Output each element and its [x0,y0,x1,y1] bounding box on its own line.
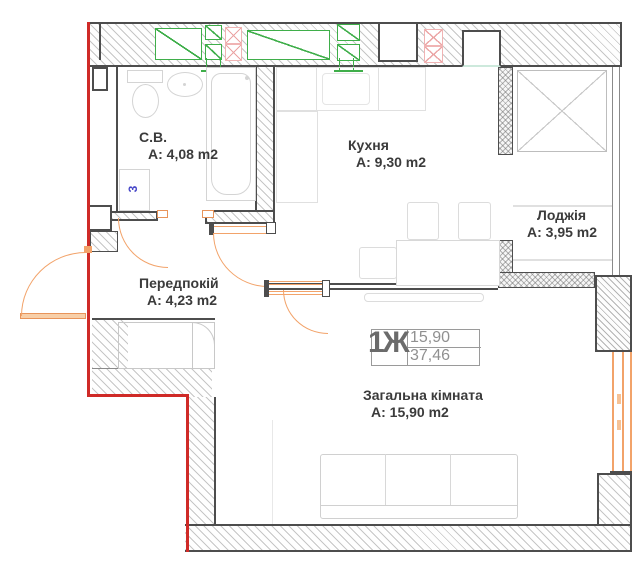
chimney-mark-icon [424,29,443,46]
entrance-door-post [84,246,92,253]
vent-shaft-icon [337,24,360,41]
stamp-total-area: 37,46 [410,347,450,365]
bathtub-inner [211,73,251,195]
wall-bathroom-left-edge [116,67,118,212]
toilet-bowl [132,84,159,118]
sofa-back-line [320,505,518,506]
wall-kitchen-loggia-top [498,67,513,155]
room-label-kitchen: Кухня [348,137,389,153]
chimney-mark-icon [225,44,242,61]
pilaster [88,205,112,231]
sink-drain [183,83,186,86]
chimney-mark-icon [225,27,242,44]
room-label-hallway: Передпокій [139,275,219,291]
bathroom-door-post [202,210,214,218]
stamp-unit-label: 1Ж [368,326,408,360]
entrance-door-arc [21,252,86,316]
kitchen-door-arc [213,233,268,287]
room-label-bathroom: С.В. [139,129,167,145]
tv-console [364,293,484,302]
washer-mark: 3 [126,174,140,204]
boundary-line-left [87,22,90,397]
vent-shaft-icon [247,30,330,60]
wardrobe-niche-edge [128,318,215,320]
pilaster [92,67,108,91]
room-area-kitchen: A: 9,30 m2 [356,154,426,170]
wall-kitchen-loggia-low [498,240,513,274]
boundary-line-step [87,394,189,397]
bathtub-tap [245,76,249,80]
loggia-shaft-box [517,70,607,152]
kitchen-counter-divider [378,67,379,111]
stamp-living-area: 15,90 [410,329,450,347]
living-room-window [612,352,632,473]
wall-bathroom-kitchen [255,67,275,222]
wall-niche-left [378,24,418,62]
loggia-glazing [612,67,620,277]
wall-living-left [188,397,216,524]
loggia-mullion [513,259,612,261]
kitchen-chair [359,247,397,279]
vent-shaft-icon [205,25,222,40]
vent-shaft-icon [155,28,202,60]
wall-loggia-bottom [498,272,595,288]
wall-top-joint [99,22,101,60]
kitchen-counter-left [276,111,318,203]
room-label-living: Загальна кімната [363,387,483,403]
chimney-mark-icon [424,46,443,63]
living-faint-line [272,420,273,524]
boundary-line-lower [186,394,189,552]
sofa-cushion-line [385,454,386,505]
wall-bottom [185,524,632,552]
kitchen-sink [322,73,370,105]
bathroom-door-arc [118,218,168,268]
wall-above-entrance [90,231,118,252]
floor-plan: 3 1Ж 15,90 37,46 С.В. A: 4,08 m2 Кухня A… [0,0,640,573]
room-area-loggia: A: 3,95 m2 [527,224,597,240]
room-area-bathroom: A: 4,08 m2 [148,146,218,162]
wall-bathroom-bottom-right [205,210,275,224]
kitchen-chair [458,202,491,240]
wall-niche-right [462,30,501,67]
kitchen-chair [407,202,439,240]
bathroom-door-post [157,210,168,218]
room-area-hallway: A: 4,23 m2 [147,292,217,308]
living-door-frame [269,281,323,285]
room-area-living: A: 15,90 m2 [371,404,449,420]
sofa [320,454,518,519]
living-door-arc [283,290,328,334]
toilet-tank [127,70,163,83]
sofa-cushion-line [450,454,451,505]
kitchen-table [396,240,500,286]
room-label-loggia: Лоджія [537,207,586,223]
wall-loggia-corner [595,275,632,352]
wall-hall-bottom-b [92,368,212,397]
kitchen-counter-divider [316,67,317,111]
